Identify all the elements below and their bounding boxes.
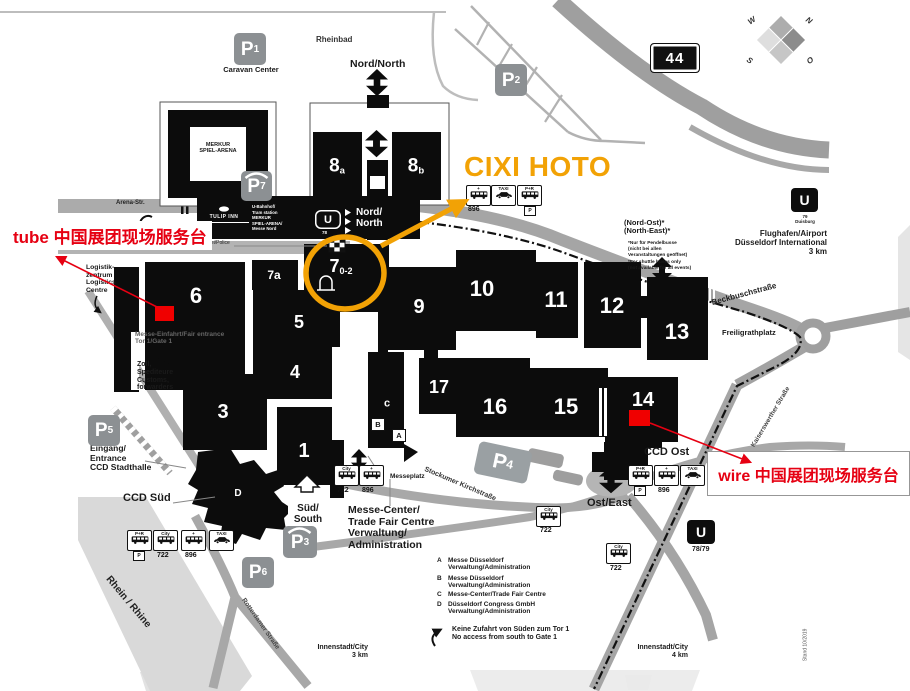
legend-text-c: Messe-Center/Trade Fair Centre xyxy=(448,591,546,598)
wire-service-desk-note: wire 中国展团现场服务台 xyxy=(707,451,910,496)
ubahn-79-icon: U xyxy=(791,188,818,212)
taxi-icon: TAXI xyxy=(209,530,234,551)
hall-4-label: 4 xyxy=(290,363,300,381)
bus-722-icon: City xyxy=(153,530,178,551)
ubahn-station-icon: U xyxy=(315,210,341,229)
ccd-sued-label: CCD Süd xyxy=(123,492,171,504)
hall-12-label: 12 xyxy=(600,295,624,317)
parking-p6-sign: P6 xyxy=(242,557,274,588)
bus-896-icon: + xyxy=(359,465,384,486)
parking-p3-sign: P3 xyxy=(283,526,317,558)
cixi-hoto-note: CIXI HOTO xyxy=(464,151,611,183)
arena-street-label: Arena-Str. xyxy=(116,200,145,207)
northeast-note-en: *For shuttle buses only (not available f… xyxy=(628,260,691,272)
bus-896-label: 896 xyxy=(185,552,197,559)
legend-key-c: C xyxy=(437,591,442,598)
hall-17-label: 17 xyxy=(429,378,449,396)
building-a-label: A xyxy=(392,429,406,442)
hall-7-label: 70-2 xyxy=(329,257,352,275)
legend-text-b: Messe Düsseldorf Verwaltung/Administrati… xyxy=(448,575,530,590)
legend-text-d: Düsseldorf Congress GmbH Verwaltung/Admi… xyxy=(448,601,535,616)
taxi-icon: TAXI xyxy=(680,465,705,486)
no-access-arrow-icon xyxy=(432,630,440,646)
building-c-label: c xyxy=(384,399,390,410)
roof-icon xyxy=(285,526,314,534)
taxi-icon: TAXI xyxy=(491,185,516,206)
customs-label: Zoll, Spediteure Customs, forwarders xyxy=(137,361,173,392)
no-access-note: Keine Zufahrt von Süden zum Tor 1 No acc… xyxy=(452,626,569,642)
bus-896-icon: + xyxy=(466,185,491,206)
ubahn-79-label: 79 Duisburg xyxy=(792,214,818,224)
legend-key-b: B xyxy=(437,575,442,582)
park-ride-icon: P+R xyxy=(127,530,152,551)
bus-896-icon: + xyxy=(181,530,206,551)
park-ride-p-tag: P xyxy=(524,206,536,216)
hall-13-label: 13 xyxy=(665,321,689,343)
hall-10-label: 10 xyxy=(470,278,494,300)
city-4km-label: Innenstadt/City 4 km xyxy=(626,644,688,660)
hall-10-shape xyxy=(456,250,536,331)
tulip-logo-icon xyxy=(219,206,229,211)
airport-label: Flughafen/Airport Düsseldorf Internation… xyxy=(735,230,827,257)
north-entrance-bar-label: Nord/ North xyxy=(356,207,383,229)
bus-722-icon: City xyxy=(606,543,631,564)
park-ride-icon: P+R xyxy=(628,465,653,486)
parking-p5-sign: P5 xyxy=(88,415,120,446)
messeplatz-label: Messeplatz xyxy=(390,473,425,480)
hall-8b-label: 8b xyxy=(408,157,424,176)
hall-6-label: 6 xyxy=(190,285,202,307)
fair-entrance-label: Messe-Einfahrt/Fair entrance Tor 1/Gate … xyxy=(135,331,224,346)
bus-896-label: 896 xyxy=(658,487,670,494)
station-label: U-Bahnhof/ Tram station MERKUR SPIEL-ARE… xyxy=(252,204,282,232)
hall-14-label: 14 xyxy=(632,390,654,410)
bus-722-label: 722 xyxy=(157,552,169,559)
bus-722-label: 722 xyxy=(337,487,349,494)
hall-5-label: 5 xyxy=(294,313,304,331)
park-ride-p-tag: P xyxy=(634,486,646,496)
northeast-title: (Nord-Ost)* (North-East)* xyxy=(624,219,670,236)
hall-16-15-shape xyxy=(456,368,608,437)
hall-7a-label: 7a xyxy=(267,269,280,281)
legend-key-d: D xyxy=(437,601,442,608)
tube-service-desk-note: tube 中国展团现场服务台 xyxy=(8,221,212,250)
south-entrance-label: Süd/ South xyxy=(288,503,328,525)
ubahn-78-label: 78 xyxy=(322,230,327,235)
highway-44-sign: 44 xyxy=(650,43,700,73)
park-ride-p-tag: P xyxy=(133,551,145,561)
ccd-ost-label: CCD Ost xyxy=(644,446,689,458)
park-ride-icon: P+R xyxy=(517,185,542,206)
hall-1-label: 1 xyxy=(298,441,309,461)
legend-key-a: A xyxy=(437,557,442,564)
p4-vehicles xyxy=(524,448,587,487)
hall-3-label: 3 xyxy=(217,402,228,422)
legend-text-a: Messe Düsseldorf Verwaltung/Administrati… xyxy=(448,557,530,572)
hall-8a-label: 8a xyxy=(329,157,345,176)
ccd-stadthalle-entrance-label: Eingang/ Entrance CCD Stadthalle xyxy=(90,444,151,473)
building-d-label: D xyxy=(234,489,241,499)
northeast-note-de: *Nur für Pendelbusse (nicht bei allen Ve… xyxy=(628,241,687,258)
bus-896-icon: + xyxy=(654,465,679,486)
caravan-center-label: Caravan Center xyxy=(219,66,283,74)
map-date-label: Stand 10/2019 xyxy=(803,629,809,662)
bus-722-label: 722 xyxy=(540,527,552,534)
ubahn-7879-icon: U xyxy=(687,520,715,544)
hall-9-label: 9 xyxy=(413,297,424,317)
city-3km-label: Innenstadt/City 3 km xyxy=(306,644,368,660)
parking-p7-sign: P7 xyxy=(241,171,272,201)
hall-16-label: 16 xyxy=(483,396,507,418)
hall-11-label: 11 xyxy=(544,289,567,311)
logistics-label: Logistik- zentrum Logistics Centre xyxy=(86,264,116,294)
ubahn-7879-label: 78/79 xyxy=(691,546,711,554)
legend-header: Messe-Center/ Trade Fair Centre Verwaltu… xyxy=(348,505,434,551)
parking-p2-sign: P2 xyxy=(495,64,527,96)
bus-722-icon: City xyxy=(334,465,359,486)
east-entrance-label: Ost/East xyxy=(587,497,632,509)
bus-896-label: 896 xyxy=(468,206,480,213)
north-entrance-top-label: Nord/North xyxy=(350,59,405,71)
compass-icon xyxy=(757,16,805,64)
rheinbad-label: Rheinbad xyxy=(316,36,352,45)
merkur-arena-label: MERKUR SPIEL-ARENA xyxy=(190,142,246,154)
bus-722-icon: City xyxy=(536,506,561,527)
fairground-map: Rheinbad Nord/North Caravan Center MERKU… xyxy=(0,0,910,691)
hall-15-label: 15 xyxy=(554,396,578,418)
building-b-label: B xyxy=(371,418,385,431)
freiligrathplatz-label: Freiligrathplatz xyxy=(722,329,776,337)
parking-p1-sign: P1 xyxy=(234,33,266,65)
bus-722-label: 722 xyxy=(610,565,622,572)
north-entrance-arrow xyxy=(366,69,388,96)
roof-icon xyxy=(243,171,270,179)
bus-896-label: 896 xyxy=(362,487,374,494)
